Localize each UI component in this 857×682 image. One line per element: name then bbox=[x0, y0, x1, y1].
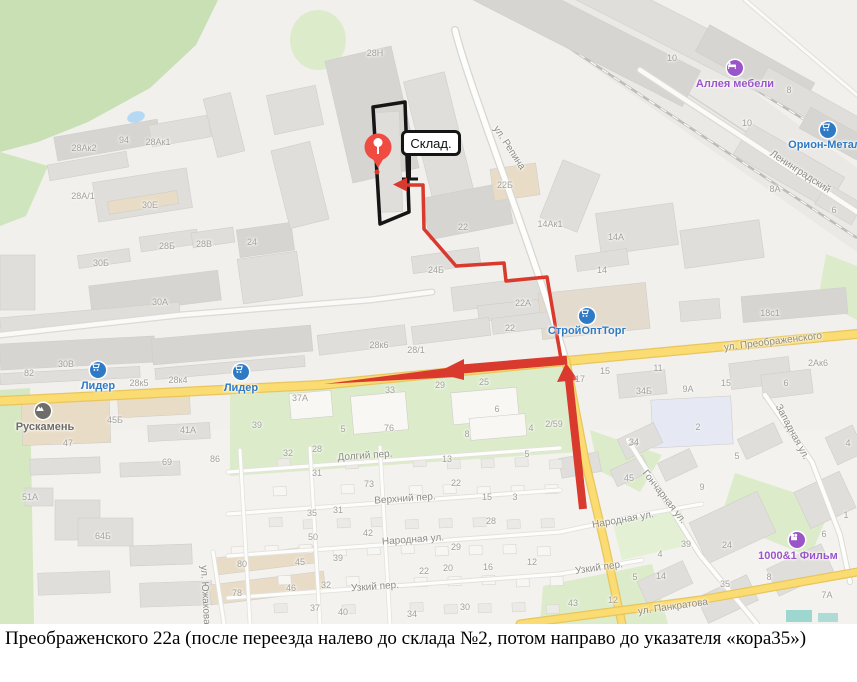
house-footprint bbox=[478, 603, 491, 613]
building-number-label: 8 bbox=[786, 85, 791, 95]
poi-label[interactable]: Лидер bbox=[81, 380, 115, 392]
building-number-label: 3 bbox=[512, 492, 517, 502]
house-footprint bbox=[549, 459, 562, 469]
caption-text: Преображенского 22а (после переезда нале… bbox=[5, 628, 855, 650]
building-number-label: 30В bbox=[58, 359, 74, 369]
building-number-label: 82 bbox=[24, 368, 34, 378]
building-number-label: 4 bbox=[528, 423, 533, 433]
building-number-label: 39 bbox=[681, 539, 691, 549]
building-number-label: 18с1 bbox=[760, 308, 780, 318]
cart-icon[interactable] bbox=[233, 364, 249, 380]
building-footprint bbox=[130, 544, 193, 566]
cart-icon[interactable] bbox=[820, 122, 836, 138]
building-number-label: 28Н bbox=[367, 48, 384, 58]
house-footprint bbox=[469, 545, 482, 555]
building-number-label: 64Б bbox=[95, 531, 111, 541]
building-number-label: 28А/1 bbox=[71, 191, 95, 201]
building-number-label: 22Б bbox=[497, 180, 513, 190]
film-icon[interactable] bbox=[789, 532, 805, 548]
building-number-label: 45Б bbox=[107, 415, 123, 425]
building-number-label: 13 bbox=[442, 454, 452, 464]
building-footprint bbox=[679, 298, 721, 321]
building-number-label: 28к6 bbox=[370, 340, 389, 350]
building-number-label: 9А bbox=[682, 384, 693, 394]
building-number-label: 39 bbox=[333, 553, 343, 563]
building-number-label: 11 bbox=[653, 363, 662, 373]
building-number-label: 15 bbox=[482, 492, 492, 502]
building-number-label: 43 bbox=[568, 598, 578, 608]
building-number-label: 10 bbox=[667, 53, 677, 63]
building-number-label: 10 bbox=[742, 118, 752, 128]
building-number-label: 24 bbox=[722, 540, 732, 550]
building-number-label: 2 bbox=[695, 422, 700, 432]
building-number-label: 94 bbox=[119, 135, 129, 145]
poi-label[interactable]: 1000&1 Фильм bbox=[758, 550, 838, 562]
building-number-label: 5 bbox=[734, 451, 739, 461]
building-number-label: 34Б bbox=[636, 386, 652, 396]
building-number-label: 7А bbox=[821, 590, 832, 600]
building-number-label: 28Ак2 bbox=[72, 143, 97, 153]
building-number-label: 31 bbox=[333, 505, 343, 515]
building-number-label: 8А bbox=[769, 184, 780, 194]
building-number-label: 28Б bbox=[159, 241, 175, 251]
building-number-label: 22 bbox=[419, 566, 429, 576]
building-footprint bbox=[38, 571, 111, 595]
map-canvas bbox=[0, 0, 857, 624]
building-number-label: 5 bbox=[340, 424, 345, 434]
poi-label[interactable]: Орион-Металл bbox=[788, 139, 857, 151]
building-number-label: 22 bbox=[505, 323, 515, 333]
building-number-label: 32 bbox=[283, 448, 293, 458]
building-number-label: 37А bbox=[292, 393, 308, 403]
building-number-label: 73 bbox=[364, 479, 374, 489]
poi-label[interactable]: Лидер bbox=[224, 382, 258, 394]
building-number-label: 35 bbox=[307, 508, 317, 518]
house-footprint bbox=[512, 602, 525, 612]
building-number-label: 28В bbox=[196, 239, 212, 249]
house-footprint bbox=[341, 484, 354, 494]
building-number-label: 28к5 bbox=[130, 378, 149, 388]
building-number-label: 30Е bbox=[142, 200, 158, 210]
building-number-label: 86 bbox=[210, 454, 220, 464]
building-footprint bbox=[237, 251, 303, 304]
house-footprint bbox=[546, 604, 559, 614]
house-footprint bbox=[273, 486, 286, 496]
building-footprint bbox=[350, 392, 408, 435]
warehouse-annotation: Склад. bbox=[401, 130, 461, 156]
building-footprint bbox=[651, 396, 733, 448]
building-number-label: 6 bbox=[494, 404, 499, 414]
building-number-label: 29 bbox=[435, 380, 445, 390]
cart-icon[interactable] bbox=[579, 308, 595, 324]
screenshot: 28Н108109428Ак228Ак128А/130Е28Б28В2430Б3… bbox=[0, 0, 857, 682]
house-footprint bbox=[405, 519, 418, 529]
building-number-label: 35 bbox=[720, 579, 730, 589]
building-number-label: 28/1 bbox=[407, 345, 425, 355]
building-number-label: 28Ак1 bbox=[146, 137, 171, 147]
building-number-label: 69 bbox=[162, 457, 172, 467]
building-number-label: 4 bbox=[845, 438, 850, 448]
building-number-label: 32 bbox=[321, 580, 331, 590]
building-number-label: 8 bbox=[766, 572, 771, 582]
building-number-label: 6 bbox=[831, 205, 836, 215]
poi-label[interactable]: Аллея мебели bbox=[696, 78, 774, 90]
house-footprint bbox=[435, 546, 448, 556]
building-number-label: 28к4 bbox=[169, 375, 188, 385]
building-number-label: 51А bbox=[22, 492, 38, 502]
building-number-label: 2Ак6 bbox=[808, 358, 828, 368]
building-number-label: 22 bbox=[451, 478, 461, 488]
stone-icon[interactable] bbox=[35, 403, 51, 419]
building-number-label: 12 bbox=[608, 595, 618, 605]
building-number-label: 25 bbox=[479, 377, 489, 387]
building-number-label: 2/59 bbox=[545, 419, 563, 429]
building-number-label: 16 bbox=[483, 562, 493, 572]
building-footprint bbox=[30, 457, 101, 475]
house-footprint bbox=[337, 518, 350, 528]
bed-icon[interactable] bbox=[727, 60, 743, 76]
building-number-label: 42 bbox=[363, 528, 373, 538]
building-number-label: 76 bbox=[384, 423, 394, 433]
building-number-label: 34 bbox=[407, 609, 417, 619]
house-footprint bbox=[269, 517, 282, 527]
building-number-label: 40 bbox=[338, 607, 348, 617]
house-footprint bbox=[439, 518, 452, 528]
house-footprint bbox=[481, 458, 494, 468]
building-number-label: 31 bbox=[312, 468, 322, 478]
building-number-label: 33 bbox=[385, 385, 395, 395]
building-number-label: 15 bbox=[600, 366, 610, 376]
building-number-label: 6 bbox=[821, 529, 826, 539]
building-number-label: 14Ак1 bbox=[538, 219, 563, 229]
house-footprint bbox=[473, 517, 486, 527]
building-number-label: 12 bbox=[527, 557, 537, 567]
building-number-label: 80 bbox=[237, 559, 247, 569]
map-image: 28Н108109428Ак228Ак128А/130Е28Б28В2430Б3… bbox=[0, 0, 857, 624]
building-number-label: 47 bbox=[63, 438, 73, 448]
building-number-label: 78 bbox=[232, 588, 242, 598]
building-number-label: 5 bbox=[632, 572, 637, 582]
building-number-label: 1 bbox=[843, 510, 848, 520]
building-number-label: 5 bbox=[524, 449, 529, 459]
building-number-label: 30А bbox=[152, 297, 168, 307]
building-number-label: 29 bbox=[451, 542, 461, 552]
building-number-label: 34 bbox=[629, 437, 639, 447]
building-number-label: 45 bbox=[624, 473, 634, 483]
house-footprint bbox=[537, 546, 550, 556]
building-number-label: 45 bbox=[295, 557, 305, 567]
building-number-label: 39 bbox=[252, 420, 262, 430]
house-footprint bbox=[503, 544, 516, 554]
building-number-label: 46 bbox=[286, 583, 296, 593]
house-footprint bbox=[274, 603, 287, 613]
building-number-label: 22А bbox=[515, 298, 531, 308]
building-footprint bbox=[0, 255, 35, 310]
building-number-label: 20 bbox=[443, 563, 453, 573]
house-footprint bbox=[541, 518, 554, 528]
building-number-label: 14 bbox=[597, 265, 607, 275]
building-number-label: 24 bbox=[247, 237, 257, 247]
building-number-label: 41А bbox=[180, 425, 196, 435]
poi-label[interactable]: Рускамень bbox=[16, 421, 75, 433]
building-number-label: 14А bbox=[608, 232, 624, 242]
building-number-label: 30 bbox=[460, 602, 470, 612]
building-number-label: 50 bbox=[308, 532, 318, 542]
poi-label[interactable]: СтройОптТорг bbox=[548, 325, 626, 337]
building-number-label: 37 bbox=[310, 603, 320, 613]
building-number-label: 17 bbox=[575, 374, 585, 384]
building-number-label: 28 bbox=[486, 516, 496, 526]
building-number-label: 8 bbox=[464, 429, 469, 439]
building-number-label: 15 bbox=[721, 378, 731, 388]
house-footprint bbox=[550, 576, 563, 586]
building-number-label: 28 bbox=[312, 444, 322, 454]
building-number-label: 6 bbox=[783, 378, 788, 388]
building-footprint bbox=[469, 414, 527, 441]
cart-icon[interactable] bbox=[90, 362, 106, 378]
building-number-label: 9 bbox=[699, 482, 704, 492]
building-number-label: 14 bbox=[656, 571, 666, 581]
building-number-label: 24Б bbox=[428, 265, 444, 275]
building-number-label: 30Б bbox=[93, 258, 109, 268]
building-number-label: 4 bbox=[657, 549, 662, 559]
building-number-label: 22 bbox=[458, 222, 468, 232]
house-footprint bbox=[507, 519, 520, 529]
house-footprint bbox=[444, 604, 457, 614]
